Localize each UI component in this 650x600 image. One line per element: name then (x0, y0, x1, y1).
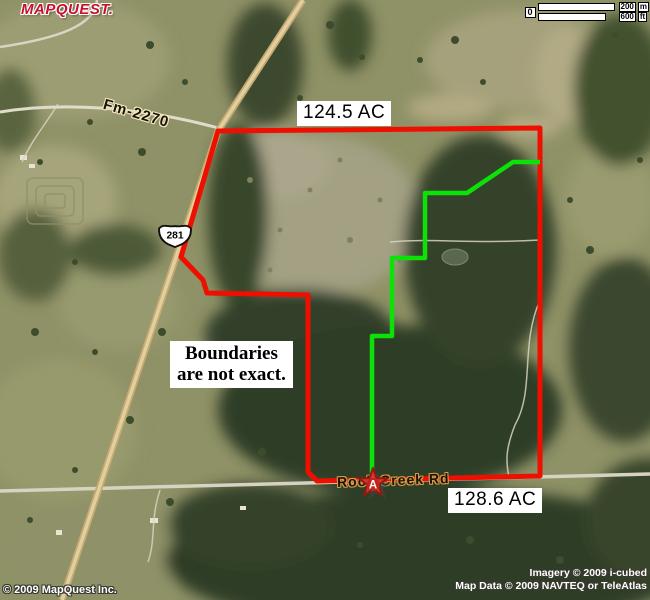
scale-bar-imperial (538, 13, 606, 21)
aerial-imagery (0, 0, 650, 600)
scale-bar-metric (538, 3, 615, 11)
scale-metric-unit: m (638, 2, 649, 12)
highway-shield-number: 281 (166, 231, 183, 242)
disclaimer-note: Boundaries are not exact. (170, 341, 293, 388)
mapquest-logo: MapQuest. (21, 1, 114, 18)
copyright-mapquest: © 2009 MapQuest Inc. (3, 584, 117, 596)
copyright-imagery-block: Imagery © 2009 i-cubed Map Data © 2009 N… (455, 567, 647, 593)
scale-row-metric: 200 m (538, 2, 649, 12)
acreage-label-south: 128.6 AC (448, 488, 542, 513)
scale-bar: 0 200 m 600 ft (525, 2, 650, 22)
highway-shield-281: 281 (156, 220, 194, 248)
copyright-imagery: Imagery © 2009 i-cubed (455, 567, 647, 580)
scale-imperial-value: 600 (619, 12, 636, 22)
marker-letter: A (369, 480, 377, 492)
copyright-map-data: Map Data © 2009 NAVTEQ or TeleAtlas (455, 580, 647, 593)
pond (442, 249, 468, 265)
scale-row-imperial: 600 ft (538, 12, 649, 22)
scale-imperial-unit: ft (638, 12, 647, 22)
acreage-label-north: 124.5 AC (297, 101, 391, 126)
scale-zero-label: 0 (525, 7, 536, 18)
scale-metric-value: 200 (619, 2, 636, 12)
map-canvas[interactable]: 124.5 AC 128.6 AC Boundaries are not exa… (0, 0, 650, 600)
location-marker-a[interactable]: A (350, 461, 396, 507)
